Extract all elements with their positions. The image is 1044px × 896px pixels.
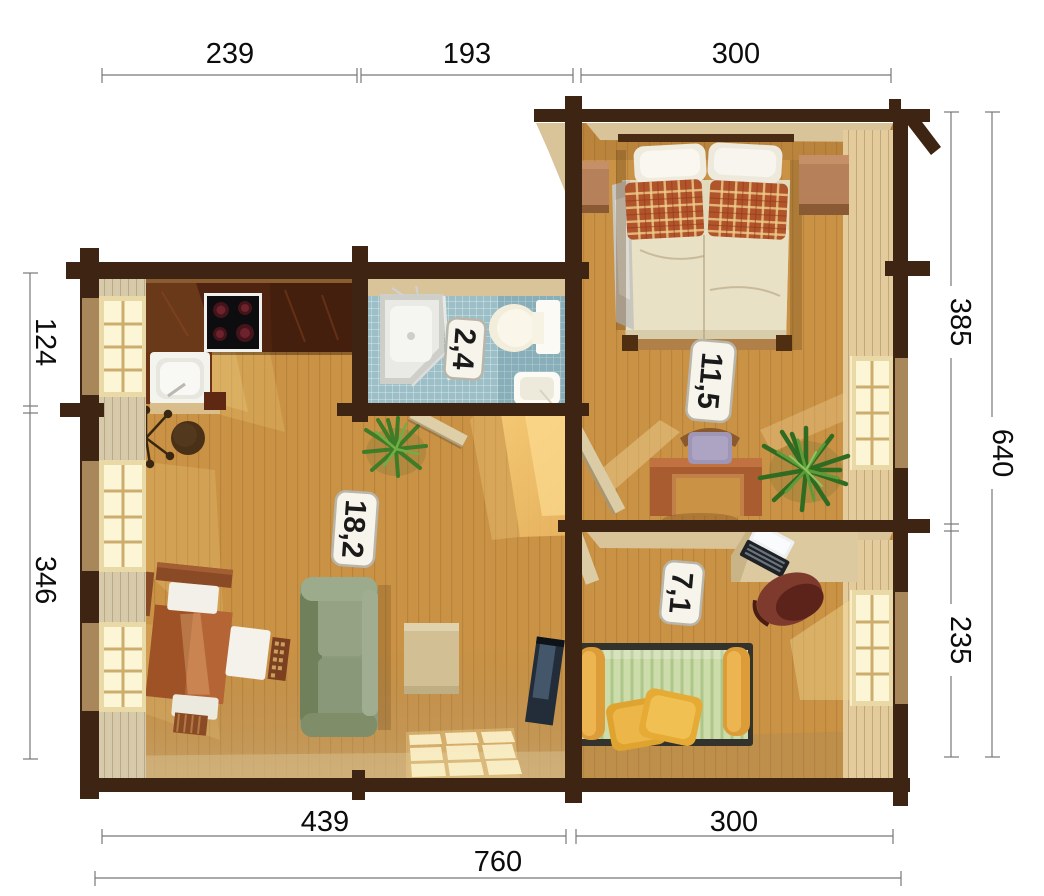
svg-text:300: 300 <box>712 38 760 70</box>
svg-text:640: 640 <box>986 429 1018 477</box>
svg-text:385: 385 <box>944 298 976 346</box>
svg-text:124: 124 <box>29 318 61 366</box>
svg-text:300: 300 <box>710 806 758 838</box>
svg-text:760: 760 <box>474 846 522 878</box>
svg-text:346: 346 <box>29 556 61 604</box>
svg-text:2,4: 2,4 <box>446 327 482 371</box>
svg-text:11,5: 11,5 <box>691 351 729 410</box>
svg-text:439: 439 <box>301 806 349 838</box>
svg-text:239: 239 <box>206 38 254 70</box>
svg-text:7,1: 7,1 <box>662 571 699 615</box>
svg-text:235: 235 <box>944 616 976 664</box>
svg-text:18,2: 18,2 <box>335 499 372 560</box>
svg-text:193: 193 <box>443 38 491 70</box>
